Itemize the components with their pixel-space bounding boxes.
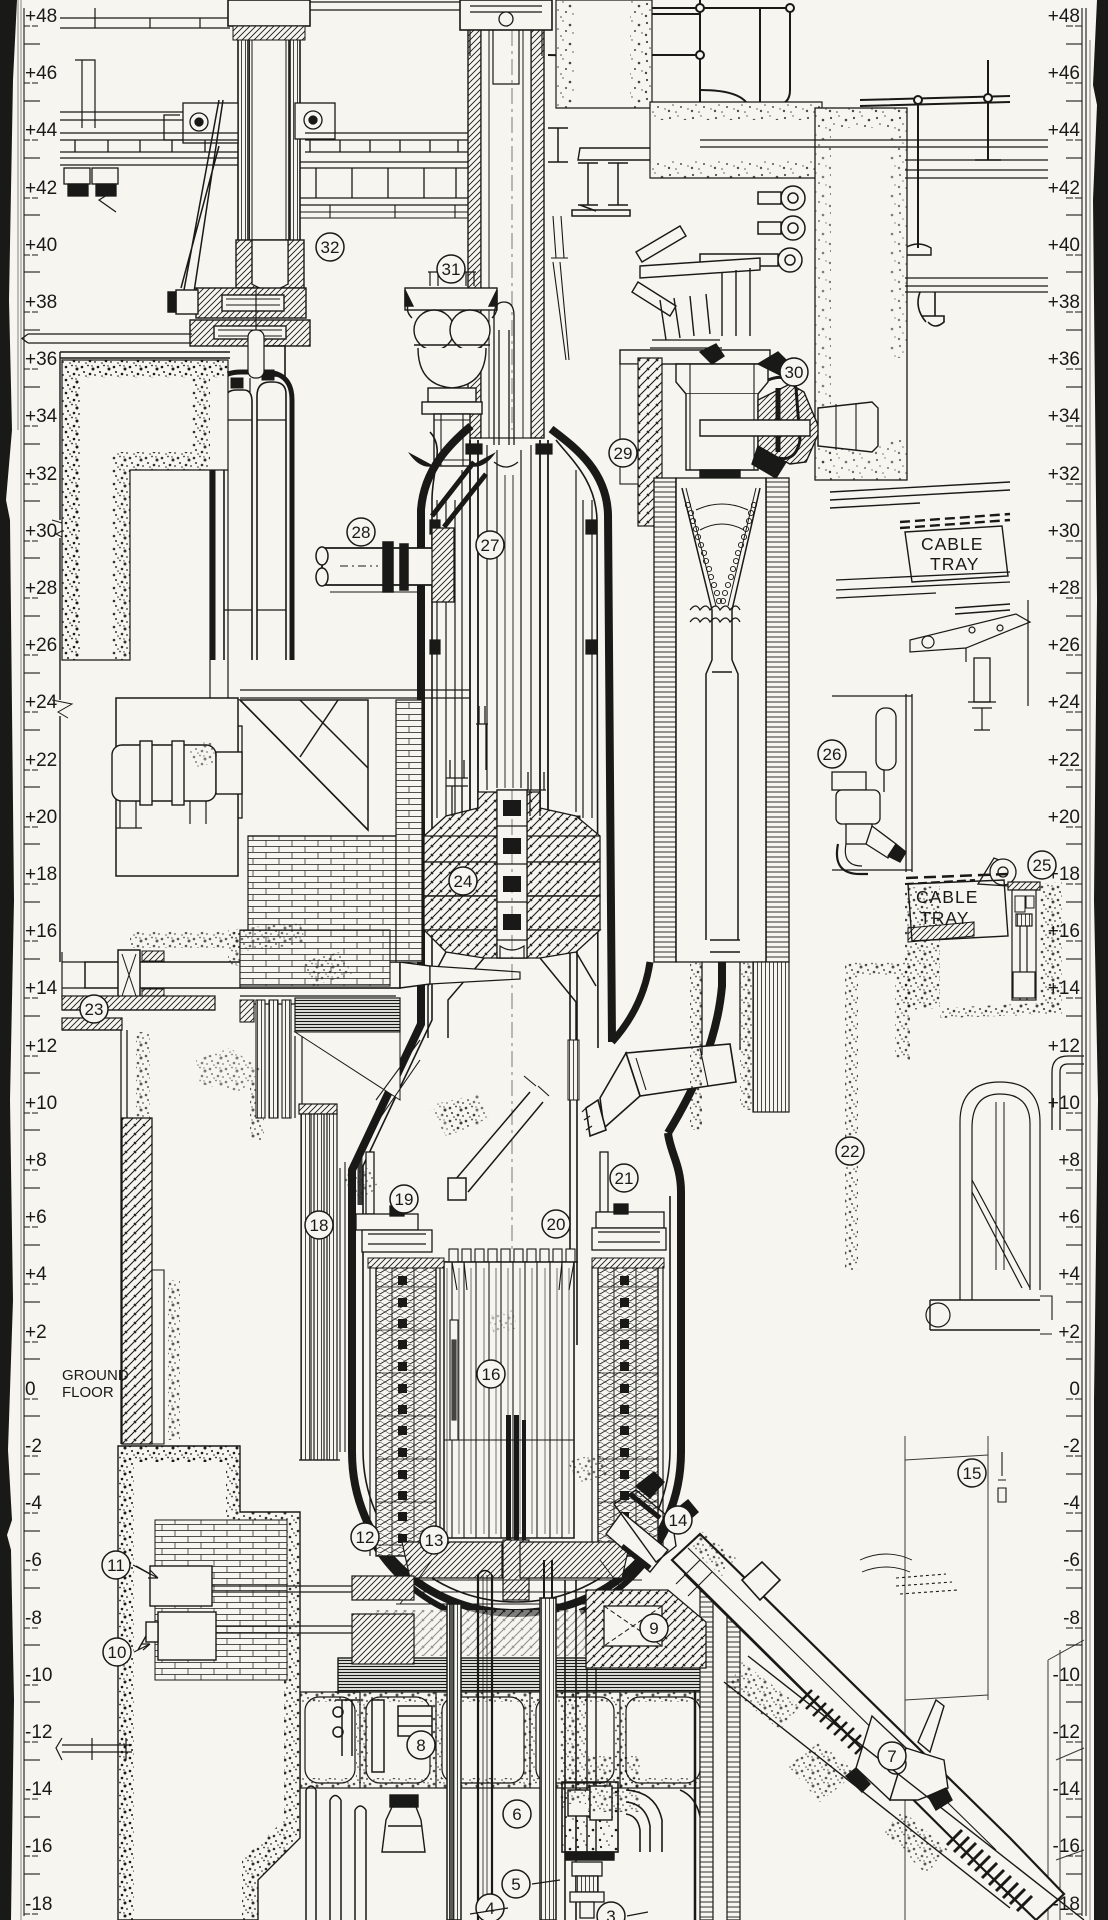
- svg-text:+8: +8: [1058, 1150, 1080, 1171]
- svg-text:22: 22: [841, 1142, 860, 1161]
- svg-text:+38: +38: [1048, 292, 1080, 313]
- svg-text:30: 30: [785, 363, 804, 382]
- svg-text:13: 13: [425, 1531, 444, 1550]
- svg-text:-2: -2: [25, 1436, 42, 1457]
- svg-text:+14: +14: [25, 978, 58, 999]
- svg-text:+6: +6: [1058, 1207, 1080, 1228]
- svg-text:+32: +32: [25, 464, 57, 485]
- svg-text:-12: -12: [25, 1722, 52, 1743]
- svg-text:21: 21: [615, 1169, 634, 1188]
- svg-text:+4: +4: [1058, 1264, 1080, 1285]
- svg-text:20: 20: [547, 1215, 566, 1234]
- svg-text:18: 18: [310, 1216, 329, 1235]
- svg-text:-14: -14: [25, 1779, 53, 1800]
- svg-text:16: 16: [482, 1365, 501, 1384]
- svg-text:3: 3: [606, 1907, 615, 1920]
- svg-text:-6: -6: [25, 1550, 42, 1571]
- svg-text:+10: +10: [25, 1093, 57, 1114]
- svg-text:+6: +6: [25, 1207, 47, 1228]
- svg-text:27: 27: [481, 536, 500, 555]
- svg-text:+34: +34: [1048, 406, 1081, 427]
- svg-text:+36: +36: [1048, 349, 1080, 370]
- svg-text:19: 19: [395, 1190, 414, 1209]
- svg-text:11: 11: [107, 1556, 125, 1575]
- svg-text:+26: +26: [1048, 635, 1080, 656]
- svg-text:-16: -16: [1053, 1836, 1080, 1857]
- svg-text:-10: -10: [25, 1665, 52, 1686]
- svg-text:10: 10: [108, 1643, 127, 1662]
- svg-text:5: 5: [511, 1875, 520, 1894]
- svg-text:+4: +4: [25, 1264, 47, 1285]
- svg-text:+38: +38: [25, 292, 57, 313]
- svg-text:+32: +32: [1048, 464, 1080, 485]
- svg-text:-8: -8: [25, 1608, 42, 1629]
- svg-text:+46: +46: [25, 63, 57, 84]
- svg-text:+30: +30: [25, 521, 57, 542]
- svg-text:-4: -4: [25, 1493, 42, 1514]
- svg-text:8: 8: [416, 1736, 425, 1755]
- svg-text:+42: +42: [1048, 178, 1080, 199]
- svg-text:+12: +12: [25, 1036, 57, 1057]
- svg-text:+18: +18: [25, 864, 57, 885]
- svg-text:32: 32: [321, 238, 340, 257]
- svg-text:12: 12: [356, 1528, 375, 1547]
- svg-text:+20: +20: [1048, 807, 1080, 828]
- svg-text:26: 26: [823, 745, 842, 764]
- svg-text:-6: -6: [1063, 1550, 1080, 1571]
- svg-text:+44: +44: [1048, 120, 1081, 141]
- svg-text:+36: +36: [25, 349, 57, 370]
- svg-text:+2: +2: [25, 1322, 47, 1343]
- svg-text:+28: +28: [1048, 578, 1080, 599]
- svg-text:15: 15: [963, 1464, 982, 1483]
- svg-text:+22: +22: [25, 750, 57, 771]
- svg-text:29: 29: [614, 444, 633, 463]
- svg-text:TRAY: TRAY: [930, 554, 979, 574]
- svg-text:4: 4: [485, 1899, 494, 1918]
- svg-text:+12: +12: [1048, 1036, 1080, 1057]
- svg-text:-4: -4: [1063, 1493, 1080, 1514]
- svg-text:+46: +46: [1048, 63, 1080, 84]
- svg-text:-10: -10: [1053, 1665, 1080, 1686]
- svg-text:+40: +40: [25, 235, 57, 256]
- svg-text:-14: -14: [1053, 1779, 1081, 1800]
- svg-text:+40: +40: [1048, 235, 1080, 256]
- svg-text:14: 14: [669, 1511, 688, 1530]
- svg-text:25: 25: [1033, 856, 1052, 875]
- svg-text:+44: +44: [25, 120, 58, 141]
- svg-text:+22: +22: [1048, 750, 1080, 771]
- svg-text:-8: -8: [1063, 1608, 1080, 1629]
- svg-text:-2: -2: [1063, 1436, 1080, 1457]
- svg-text:+16: +16: [25, 921, 57, 942]
- svg-text:-12: -12: [1053, 1722, 1080, 1743]
- svg-text:7: 7: [887, 1747, 896, 1766]
- svg-text:+24: +24: [1048, 692, 1081, 713]
- svg-text:23: 23: [85, 1000, 104, 1019]
- svg-text:CABLE: CABLE: [921, 534, 983, 554]
- svg-text:9: 9: [649, 1619, 658, 1638]
- svg-text:+34: +34: [25, 406, 58, 427]
- svg-text:31: 31: [442, 260, 461, 279]
- svg-text:0: 0: [25, 1379, 36, 1400]
- svg-text:6: 6: [512, 1805, 521, 1824]
- svg-text:0: 0: [1069, 1379, 1080, 1400]
- svg-text:GROUND: GROUND: [62, 1367, 129, 1384]
- svg-text:+48: +48: [25, 6, 57, 27]
- svg-text:+20: +20: [25, 807, 57, 828]
- svg-text:CABLE: CABLE: [916, 887, 978, 907]
- svg-text:+28: +28: [25, 578, 57, 599]
- svg-text:+2: +2: [1058, 1322, 1080, 1343]
- svg-text:24: 24: [454, 872, 473, 891]
- svg-text:+8: +8: [25, 1150, 47, 1171]
- svg-text:+24: +24: [25, 692, 58, 713]
- svg-text:+30: +30: [1048, 521, 1080, 542]
- svg-text:-18: -18: [25, 1894, 52, 1915]
- svg-text:+42: +42: [25, 178, 57, 199]
- svg-text:+26: +26: [25, 635, 57, 656]
- svg-text:FLOOR: FLOOR: [62, 1384, 114, 1401]
- svg-text:-16: -16: [25, 1836, 52, 1857]
- svg-text:TRAY: TRAY: [920, 908, 969, 928]
- svg-text:+48: +48: [1048, 6, 1080, 27]
- svg-text:28: 28: [352, 523, 371, 542]
